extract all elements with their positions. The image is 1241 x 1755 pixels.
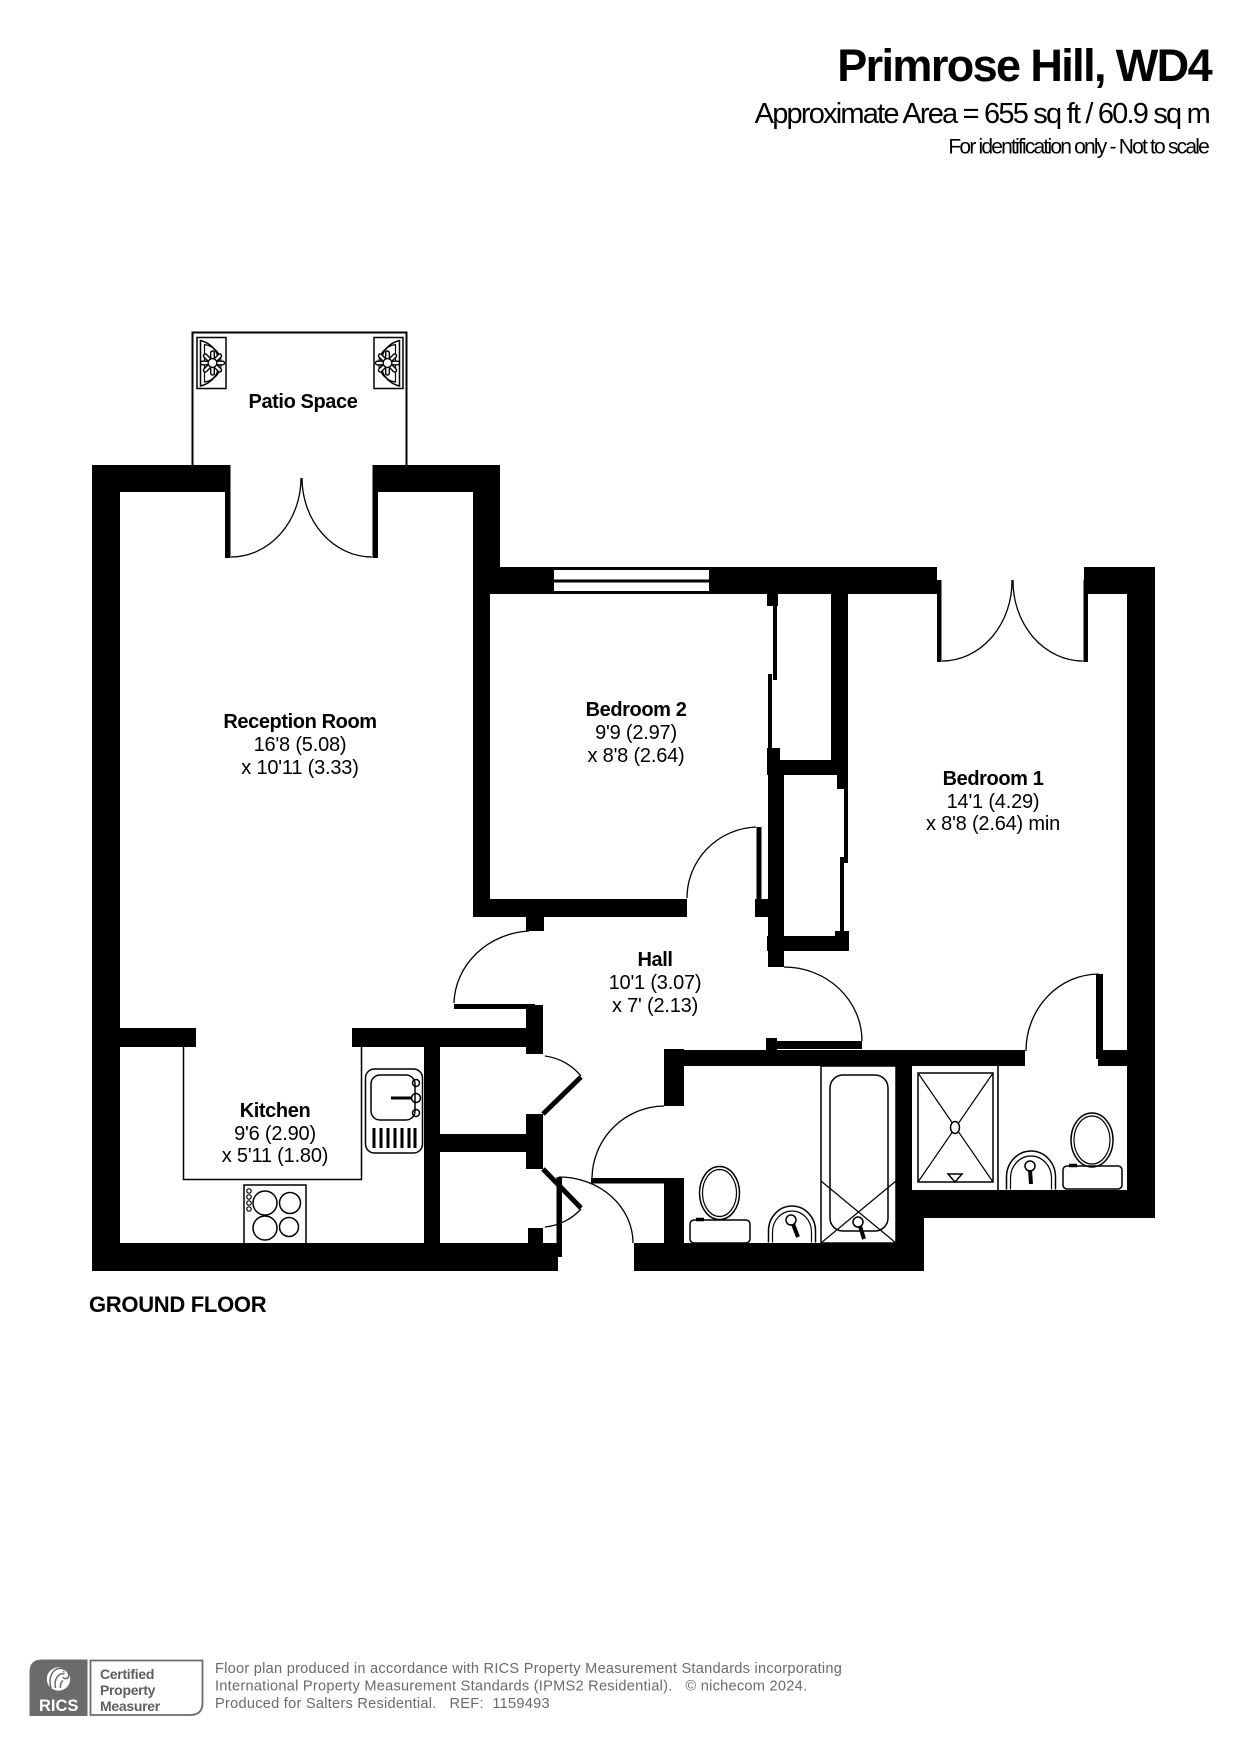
svg-text:9'9 (2.97): 9'9 (2.97) [595,722,677,744]
svg-text:10'1 (3.07): 10'1 (3.07) [609,972,702,994]
svg-text:Produced for Salters Residenti: Produced for Salters Residential. REF: 1… [215,1696,550,1712]
svg-text:International Property Measure: International Property Measurement Stand… [215,1679,807,1695]
svg-text:GROUND FLOOR: GROUND FLOOR [89,1292,267,1317]
svg-text:16'8 (5.08): 16'8 (5.08) [254,734,347,756]
svg-text:Floor plan produced in accorda: Floor plan produced in accordance with R… [215,1661,842,1677]
svg-text:Primrose Hill, WD4: Primrose Hill, WD4 [837,40,1212,91]
svg-text:x 10'11 (3.33): x 10'11 (3.33) [241,757,358,779]
svg-text:Bedroom 2: Bedroom 2 [586,699,687,721]
svg-text:Certified: Certified [100,1666,154,1682]
svg-text:Reception Room: Reception Room [223,711,376,733]
svg-text:14'1 (4.29): 14'1 (4.29) [947,791,1040,813]
svg-text:x 5'11 (1.80): x 5'11 (1.80) [222,1145,328,1167]
svg-text:For identification only - Not: For identification only - Not to scale [948,136,1209,159]
svg-text:Measurer: Measurer [100,1698,161,1714]
svg-text:RICS: RICS [39,1697,78,1715]
svg-text:x 8'8 (2.64) min: x 8'8 (2.64) min [926,813,1060,835]
svg-text:x 8'8 (2.64): x 8'8 (2.64) [587,745,684,767]
svg-text:Bedroom 1: Bedroom 1 [943,768,1044,790]
svg-text:9'6 (2.90): 9'6 (2.90) [234,1123,316,1145]
svg-text:Kitchen: Kitchen [240,1100,311,1122]
svg-text:Hall: Hall [637,949,672,971]
svg-text:x 7' (2.13): x 7' (2.13) [612,995,698,1017]
svg-text:Property: Property [100,1682,156,1698]
svg-text:Approximate Area = 655 sq ft /: Approximate Area = 655 sq ft / 60.9 sq m [755,98,1210,130]
svg-text:Patio Space: Patio Space [249,391,358,413]
